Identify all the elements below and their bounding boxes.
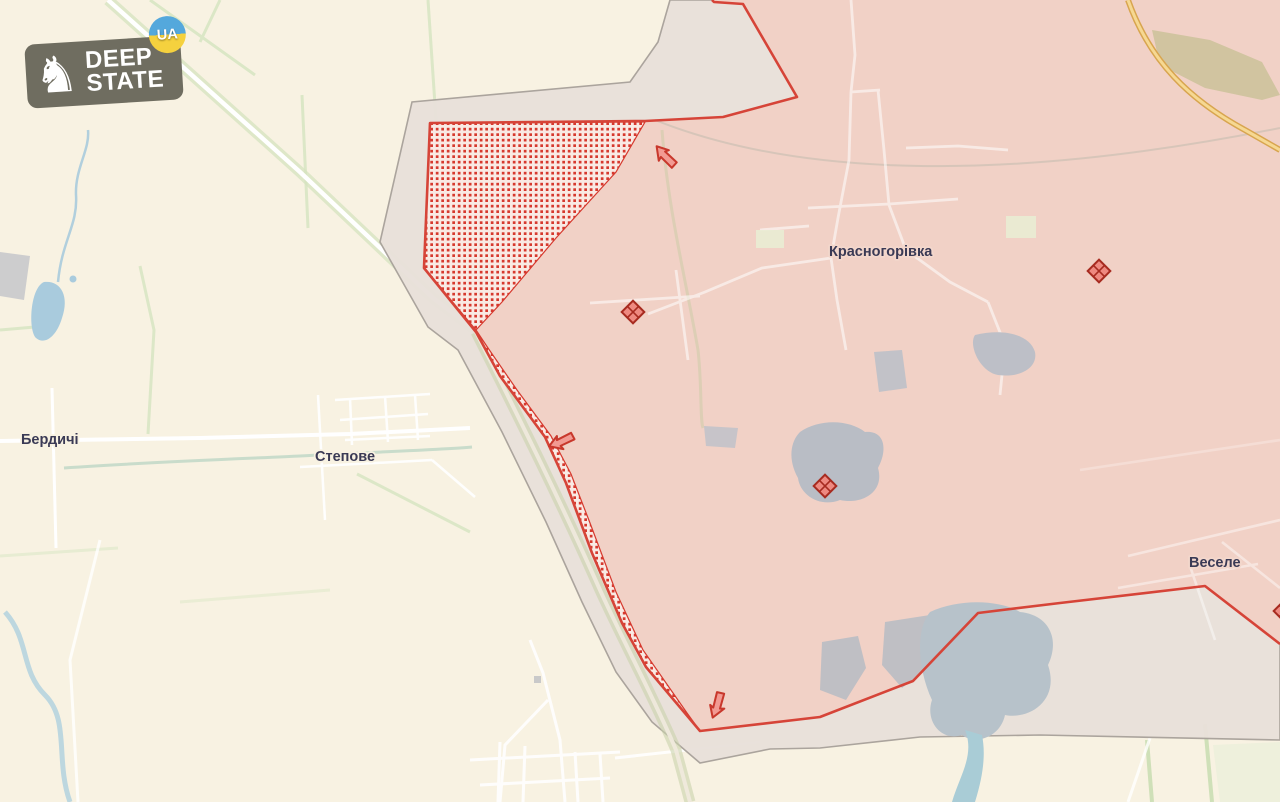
place-label-krasnohorivka: Красногорівка xyxy=(829,244,933,260)
place-label-vesele: Веселе xyxy=(1189,555,1241,571)
chess-knight-icon: ♞ xyxy=(33,49,81,102)
deepstate-logo: ♞ DEEP STATE UA xyxy=(24,35,184,108)
place-label-stepove: Степове xyxy=(315,449,375,465)
logo-plate: ♞ DEEP STATE UA xyxy=(24,35,184,108)
map-canvas[interactable]: Бердичі Степове Красногорівка Веселе ♞ D… xyxy=(0,0,1280,802)
small-building xyxy=(534,676,541,683)
logo-line2: STATE xyxy=(86,68,165,95)
pond-krasnohorivka xyxy=(791,422,883,502)
place-label-berdychi: Бердичі xyxy=(21,432,79,448)
logo-wordmark: DEEP STATE xyxy=(84,46,164,96)
